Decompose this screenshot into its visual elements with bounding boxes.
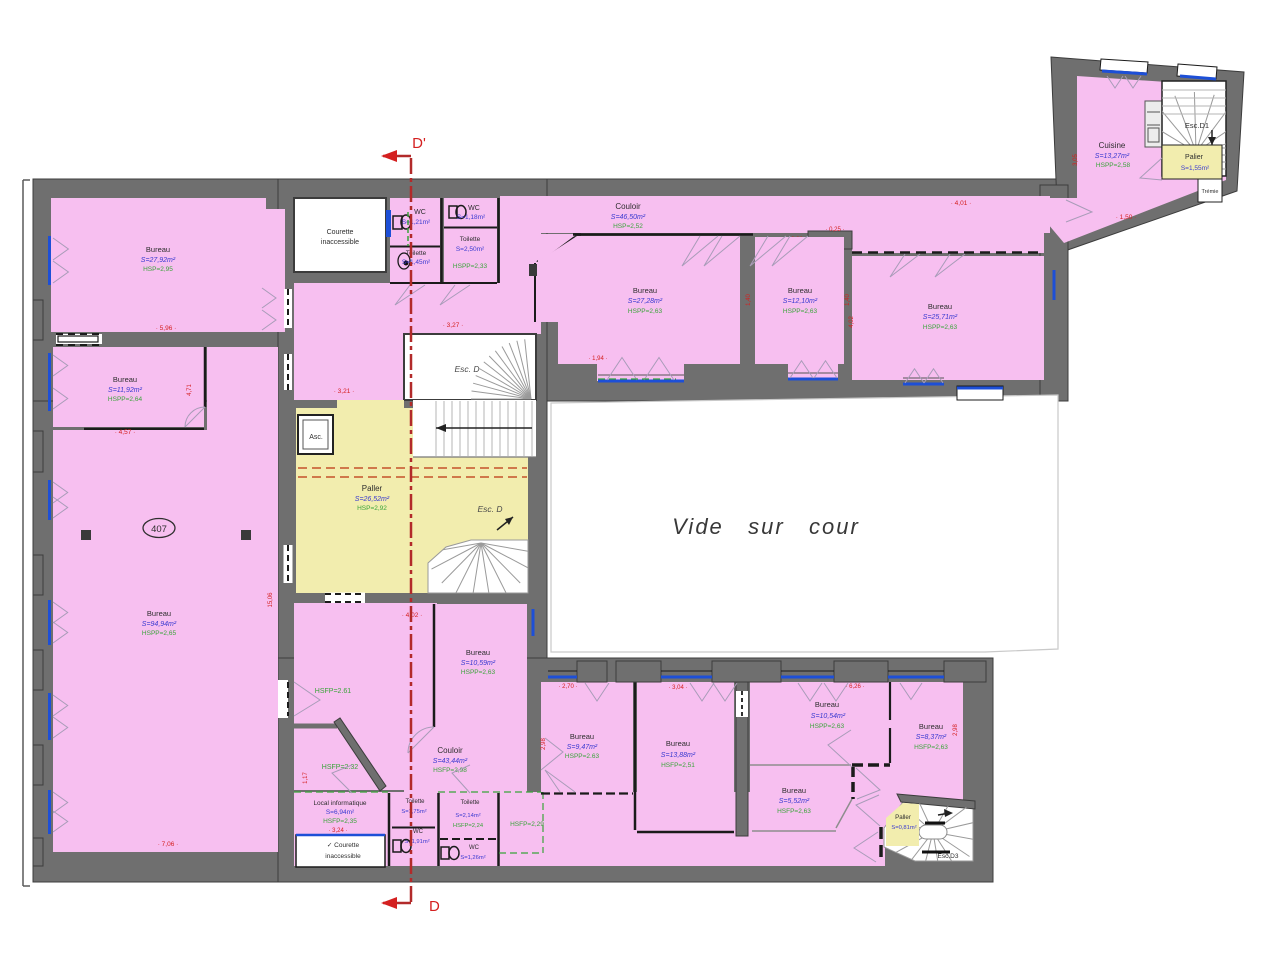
svg-text:Vide sur cour: Vide sur cour [672,514,860,539]
svg-text:Bureau: Bureau [633,286,657,295]
svg-text:S=9,47m²: S=9,47m² [567,744,598,751]
svg-text:S=1,21m²: S=1,21m² [402,219,431,226]
svg-text:S=1,45m²: S=1,45m² [402,259,431,266]
svg-text:S=94,94m²: S=94,94m² [142,621,177,628]
svg-text:Toilette: Toilette [405,799,425,805]
svg-text:S=6,94m²: S=6,94m² [326,809,355,816]
svg-text:Bureau: Bureau [147,609,171,618]
svg-text:HSFP=2,29: HSFP=2,29 [510,821,544,828]
svg-text:inaccessible: inaccessible [321,239,359,246]
svg-text:HSPP=2,63: HSPP=2,63 [628,308,663,315]
svg-text:S=10,54m²: S=10,54m² [811,713,846,720]
svg-text:Couloir: Couloir [615,202,641,211]
svg-text:· 5,96 ·: · 5,96 · [156,325,177,332]
svg-text:1,40: 1,40 [746,294,752,306]
svg-text:Toilette: Toilette [460,800,480,806]
svg-text:· 1,94 ·: · 1,94 · [588,356,607,362]
svg-text:HSPP=2,33: HSPP=2,33 [453,263,488,270]
svg-text:D': D' [412,135,426,152]
svg-text:S=2,14m²: S=2,14m² [455,813,480,819]
svg-text:S=0,81m²: S=0,81m² [891,825,916,831]
svg-text:HSPP=2,63: HSPP=2,63 [783,308,818,315]
svg-text:· 3,27 ·: · 3,27 · [443,322,464,329]
svg-text:HSFP=2,35: HSFP=2,35 [323,818,357,825]
svg-text:HSFP=2.61: HSFP=2.61 [315,688,351,695]
svg-text:S=11,92m²: S=11,92m² [108,387,143,394]
svg-text:· 4,01 ·: · 4,01 · [951,200,972,207]
svg-text:· 6,26 ·: · 6,26 · [845,684,864,690]
svg-text:S=13,27m²: S=13,27m² [1095,153,1130,160]
svg-text:WC: WC [469,845,480,851]
svg-text:Trémie: Trémie [1202,189,1219,195]
svg-text:HSP=2,95: HSP=2,95 [143,266,173,273]
svg-text:S=46,50m²: S=46,50m² [611,214,646,221]
svg-text:Esc.D3: Esc.D3 [938,853,959,860]
svg-text:✓ Courette: ✓ Courette [327,842,360,849]
svg-text:Courette: Courette [327,229,354,236]
svg-text:S=43,44m²: S=43,44m² [433,758,468,765]
svg-text:HSPP=2,65: HSPP=2,65 [142,630,177,637]
svg-text:1,40: 1,40 [845,294,851,306]
svg-text:Esc.D1: Esc.D1 [1185,121,1209,130]
svg-text:HSPP=2.63: HSPP=2.63 [565,753,600,760]
svg-text:· 4,57 ·: · 4,57 · [115,429,136,436]
svg-text:S=5,52m²: S=5,52m² [779,798,810,805]
svg-text:S=10,59m²: S=10,59m² [461,660,496,667]
svg-text:HSPP=2,63: HSPP=2,63 [810,723,845,730]
svg-text:HSPP=2,63: HSPP=2,63 [461,669,496,676]
svg-text:Bureau: Bureau [815,700,839,709]
svg-text:4,02: 4,02 [849,316,855,328]
svg-text:15,06: 15,06 [268,592,274,608]
svg-text:S=8,37m²: S=8,37m² [916,734,947,741]
svg-text:Toilette: Toilette [460,236,481,243]
svg-text:Toilette: Toilette [406,250,427,257]
svg-text:HSPP=2,58: HSPP=2,58 [1096,162,1131,169]
svg-text:HSPP=2,64: HSPP=2,64 [108,396,143,403]
svg-text:Bureau: Bureau [113,375,137,384]
svg-text:S=2,50m²: S=2,50m² [456,246,485,253]
svg-text:S=27,28m²: S=27,28m² [628,298,663,305]
svg-text:Bureau: Bureau [146,245,170,254]
svg-text:WC: WC [468,205,480,212]
svg-text:Bureau: Bureau [570,732,594,741]
svg-text:S=27,92m²: S=27,92m² [141,257,176,264]
svg-text:Bureau: Bureau [666,739,690,748]
svg-text:D: D [429,898,440,915]
svg-text:· 1,50 ·: · 1,50 · [1116,214,1137,221]
svg-text:· 3,04 ·: · 3,04 · [668,685,687,691]
svg-text:4,71: 4,71 [187,384,193,396]
svg-text:2,98: 2,98 [953,724,959,736]
svg-text:· 3,21 ·: · 3,21 · [334,388,355,395]
svg-text:WC: WC [414,209,426,216]
svg-text:407: 407 [151,524,167,535]
svg-text:· 0,25 ·: · 0,25 · [825,227,844,233]
svg-text:Bureau: Bureau [782,786,806,795]
svg-text:S=25,71m²: S=25,71m² [923,314,958,321]
svg-text:S=1,18m²: S=1,18m² [457,214,486,221]
svg-text:Couloir: Couloir [437,746,463,755]
svg-text:Bureau: Bureau [466,648,490,657]
svg-text:HSP=2,52: HSP=2,52 [613,223,643,230]
svg-text:HSP=2,92: HSP=2,92 [357,505,387,512]
svg-text:S=12,10m²: S=12,10m² [783,298,818,305]
svg-text:Paller: Paller [362,484,383,493]
svg-text:HSFP=2,51: HSFP=2,51 [661,762,695,769]
svg-text:WC: WC [413,829,424,835]
svg-text:Palier: Palier [1185,154,1204,161]
svg-text:HSFP=2,63: HSFP=2,63 [777,808,811,815]
svg-text:HSPP=2,63: HSPP=2,63 [923,324,958,331]
svg-text:S=26,52m²: S=26,52m² [355,496,390,503]
svg-text:3,05: 3,05 [1073,154,1079,166]
svg-text:S=13,88m²: S=13,88m² [661,752,696,759]
svg-text:S=1,75m²: S=1,75m² [401,809,426,815]
svg-text:inaccessible: inaccessible [325,853,361,860]
svg-text:S=1,26m²: S=1,26m² [460,855,485,861]
svg-text:S=1,55m²: S=1,55m² [1181,165,1210,172]
svg-text:Paller: Paller [895,814,911,821]
svg-text:Bureau: Bureau [788,286,812,295]
svg-text:Esc. D: Esc. D [454,364,479,374]
svg-text:1,17: 1,17 [303,772,309,784]
svg-text:Asc.: Asc. [309,434,323,441]
svg-text:· 3,24 ·: · 3,24 · [328,828,347,834]
svg-text:Bureau: Bureau [919,722,943,731]
svg-text:· 2,70 ·: · 2,70 · [558,684,577,690]
svg-text:Cuisine: Cuisine [1099,141,1126,150]
svg-text:Esc. D: Esc. D [477,504,502,514]
svg-text:HSFP=2,24: HSFP=2,24 [453,823,484,829]
svg-text:· 7,06 ·: · 7,06 · [158,841,179,848]
svg-text:Local informatique: Local informatique [313,800,366,807]
svg-text:HSFP=2,63: HSFP=2,63 [914,744,948,751]
svg-text:Bureau: Bureau [928,302,952,311]
